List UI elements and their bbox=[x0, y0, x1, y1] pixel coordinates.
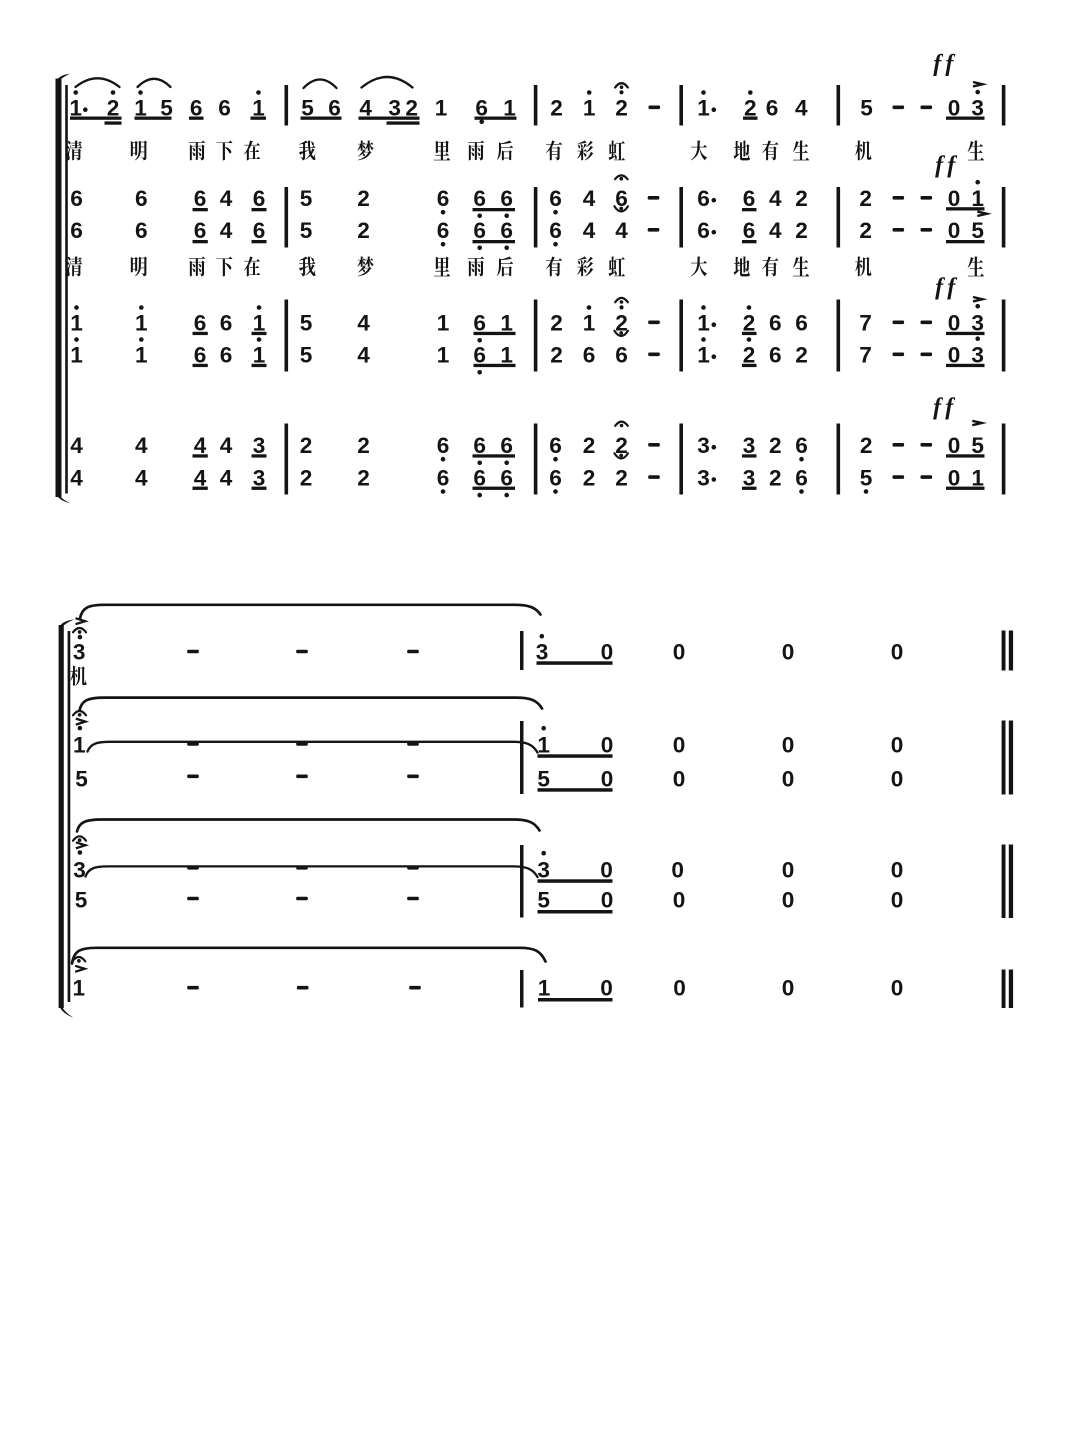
svg-text:6: 6 bbox=[583, 343, 596, 368]
svg-text:2: 2 bbox=[859, 186, 872, 211]
svg-text:3: 3 bbox=[697, 465, 710, 490]
svg-text:4: 4 bbox=[583, 186, 596, 211]
svg-text:6: 6 bbox=[697, 218, 710, 243]
svg-text:ff: ff bbox=[935, 152, 960, 178]
svg-text:7: 7 bbox=[859, 343, 872, 368]
svg-text:6: 6 bbox=[473, 465, 486, 490]
svg-text:0: 0 bbox=[891, 858, 904, 883]
svg-text:6: 6 bbox=[473, 311, 486, 336]
svg-text:6: 6 bbox=[473, 186, 486, 211]
svg-text:1: 1 bbox=[583, 96, 596, 121]
svg-text:0: 0 bbox=[782, 888, 795, 913]
svg-text:5: 5 bbox=[537, 888, 550, 913]
svg-text:0: 0 bbox=[948, 343, 961, 368]
svg-text:3: 3 bbox=[253, 465, 266, 490]
svg-text:2: 2 bbox=[550, 311, 563, 336]
svg-text:2: 2 bbox=[795, 218, 808, 243]
svg-text:6: 6 bbox=[697, 186, 710, 211]
svg-text:6: 6 bbox=[795, 433, 808, 458]
svg-text:1: 1 bbox=[435, 96, 448, 121]
svg-text:0: 0 bbox=[673, 766, 686, 791]
svg-text:6: 6 bbox=[194, 311, 207, 336]
svg-text:2: 2 bbox=[615, 96, 628, 121]
svg-text:6: 6 bbox=[500, 465, 513, 490]
svg-text:6: 6 bbox=[220, 343, 233, 368]
svg-text:0: 0 bbox=[948, 218, 961, 243]
svg-text:3: 3 bbox=[537, 858, 550, 883]
svg-text:2: 2 bbox=[860, 433, 873, 458]
svg-text:0: 0 bbox=[673, 733, 686, 758]
svg-text:1: 1 bbox=[73, 733, 86, 758]
svg-text:4: 4 bbox=[615, 218, 628, 243]
svg-text:1: 1 bbox=[253, 343, 266, 368]
svg-text:5: 5 bbox=[971, 218, 984, 243]
svg-text:4: 4 bbox=[583, 218, 596, 243]
svg-text:2: 2 bbox=[795, 343, 808, 368]
svg-text:6: 6 bbox=[769, 311, 782, 336]
svg-text:2: 2 bbox=[357, 433, 370, 458]
svg-text:ff: ff bbox=[933, 395, 958, 421]
svg-text:5: 5 bbox=[860, 465, 873, 490]
svg-text:4: 4 bbox=[135, 465, 148, 490]
svg-text:4: 4 bbox=[220, 186, 233, 211]
svg-text:2: 2 bbox=[795, 186, 808, 211]
svg-text:1: 1 bbox=[437, 311, 450, 336]
svg-text:6: 6 bbox=[437, 433, 450, 458]
svg-text:6: 6 bbox=[615, 343, 628, 368]
svg-text:6: 6 bbox=[70, 218, 83, 243]
svg-text:2: 2 bbox=[550, 343, 563, 368]
svg-text:5: 5 bbox=[75, 888, 88, 913]
svg-text:2: 2 bbox=[550, 96, 563, 121]
svg-text:0: 0 bbox=[782, 733, 795, 758]
svg-text:4: 4 bbox=[70, 465, 83, 490]
svg-text:2: 2 bbox=[743, 343, 756, 368]
svg-text:1: 1 bbox=[537, 733, 550, 758]
svg-text:4: 4 bbox=[769, 218, 782, 243]
svg-text:0: 0 bbox=[782, 858, 795, 883]
svg-text:0: 0 bbox=[891, 766, 904, 791]
svg-text:6: 6 bbox=[135, 186, 148, 211]
svg-text:5: 5 bbox=[300, 311, 313, 336]
svg-text:5: 5 bbox=[300, 186, 313, 211]
svg-text:6: 6 bbox=[549, 186, 562, 211]
svg-text:5: 5 bbox=[75, 766, 88, 791]
svg-text:0: 0 bbox=[673, 640, 686, 665]
svg-text:3: 3 bbox=[971, 311, 984, 336]
svg-text:3: 3 bbox=[73, 858, 86, 883]
svg-text:1: 1 bbox=[971, 465, 984, 490]
svg-text:0: 0 bbox=[782, 976, 795, 1001]
svg-text:0: 0 bbox=[601, 733, 614, 758]
svg-text:7: 7 bbox=[859, 311, 872, 336]
svg-text:2: 2 bbox=[357, 218, 370, 243]
svg-text:2: 2 bbox=[615, 465, 628, 490]
svg-text:2: 2 bbox=[769, 433, 782, 458]
svg-text:0: 0 bbox=[948, 433, 961, 458]
svg-text:6: 6 bbox=[218, 96, 231, 121]
svg-text:1: 1 bbox=[697, 311, 710, 336]
svg-text:4: 4 bbox=[769, 186, 782, 211]
svg-text:6: 6 bbox=[194, 218, 207, 243]
svg-text:6: 6 bbox=[220, 311, 233, 336]
svg-text:6: 6 bbox=[70, 186, 83, 211]
svg-text:3: 3 bbox=[536, 640, 549, 665]
svg-text:3: 3 bbox=[743, 465, 756, 490]
svg-text:0: 0 bbox=[601, 640, 614, 665]
svg-text:6: 6 bbox=[437, 218, 450, 243]
svg-text:3: 3 bbox=[697, 433, 710, 458]
svg-text:2: 2 bbox=[769, 465, 782, 490]
svg-text:6: 6 bbox=[743, 218, 756, 243]
svg-text:ff: ff bbox=[933, 51, 958, 77]
svg-text:2: 2 bbox=[583, 465, 596, 490]
svg-text:1: 1 bbox=[437, 343, 450, 368]
svg-text:4: 4 bbox=[135, 433, 148, 458]
svg-text:0: 0 bbox=[671, 858, 684, 883]
svg-text:0: 0 bbox=[782, 766, 795, 791]
svg-text:6: 6 bbox=[766, 96, 779, 121]
svg-text:4: 4 bbox=[795, 96, 808, 121]
svg-text:0: 0 bbox=[948, 465, 961, 490]
svg-text:2: 2 bbox=[357, 186, 370, 211]
svg-text:6: 6 bbox=[500, 218, 513, 243]
svg-text:1: 1 bbox=[73, 976, 86, 1001]
svg-text:0: 0 bbox=[673, 888, 686, 913]
svg-text:0: 0 bbox=[673, 976, 686, 1001]
svg-text:5: 5 bbox=[300, 343, 313, 368]
svg-text:2: 2 bbox=[743, 311, 756, 336]
svg-text:4: 4 bbox=[220, 218, 233, 243]
svg-text:0: 0 bbox=[782, 640, 795, 665]
svg-text:4: 4 bbox=[220, 465, 233, 490]
svg-text:5: 5 bbox=[860, 96, 873, 121]
svg-text:6: 6 bbox=[135, 218, 148, 243]
svg-text:1: 1 bbox=[135, 311, 148, 336]
svg-text:4: 4 bbox=[357, 311, 370, 336]
svg-text:6: 6 bbox=[795, 465, 808, 490]
svg-text:0: 0 bbox=[601, 766, 614, 791]
svg-text:3: 3 bbox=[743, 433, 756, 458]
svg-text:6: 6 bbox=[194, 186, 207, 211]
svg-text:2: 2 bbox=[583, 433, 596, 458]
svg-text:4: 4 bbox=[194, 433, 207, 458]
svg-text:5: 5 bbox=[537, 766, 550, 791]
svg-text:1: 1 bbox=[697, 343, 710, 368]
svg-text:0: 0 bbox=[891, 733, 904, 758]
svg-text:1: 1 bbox=[500, 311, 513, 336]
svg-text:0: 0 bbox=[891, 976, 904, 1001]
svg-text:6: 6 bbox=[549, 218, 562, 243]
svg-text:3: 3 bbox=[971, 343, 984, 368]
svg-text:6: 6 bbox=[795, 311, 808, 336]
svg-text:6: 6 bbox=[473, 433, 486, 458]
svg-text:1: 1 bbox=[697, 96, 710, 121]
svg-text:0: 0 bbox=[600, 976, 613, 1001]
svg-text:1: 1 bbox=[253, 311, 266, 336]
svg-text:4: 4 bbox=[70, 433, 83, 458]
svg-text:5: 5 bbox=[300, 218, 313, 243]
svg-text:ff: ff bbox=[935, 275, 960, 301]
svg-text:6: 6 bbox=[194, 343, 207, 368]
svg-text:6: 6 bbox=[769, 343, 782, 368]
svg-text:4: 4 bbox=[220, 433, 233, 458]
svg-text:6: 6 bbox=[253, 186, 266, 211]
svg-text:0: 0 bbox=[891, 640, 904, 665]
svg-text:6: 6 bbox=[500, 186, 513, 211]
svg-text:0: 0 bbox=[948, 311, 961, 336]
svg-text:6: 6 bbox=[253, 218, 266, 243]
svg-text:2: 2 bbox=[357, 465, 370, 490]
svg-text:1: 1 bbox=[500, 343, 513, 368]
svg-text:6: 6 bbox=[500, 433, 513, 458]
svg-text:1: 1 bbox=[135, 343, 148, 368]
svg-text:6: 6 bbox=[549, 465, 562, 490]
svg-text:0: 0 bbox=[601, 888, 614, 913]
svg-text:0: 0 bbox=[891, 888, 904, 913]
svg-text:1: 1 bbox=[538, 976, 551, 1001]
svg-text:6: 6 bbox=[473, 218, 486, 243]
svg-text:1: 1 bbox=[70, 343, 83, 368]
svg-text:6: 6 bbox=[743, 186, 756, 211]
svg-text:6: 6 bbox=[437, 465, 450, 490]
svg-text:3: 3 bbox=[73, 640, 86, 665]
svg-text:1: 1 bbox=[70, 311, 83, 336]
svg-text:0: 0 bbox=[600, 858, 613, 883]
svg-text:2: 2 bbox=[300, 465, 313, 490]
svg-text:1: 1 bbox=[583, 311, 596, 336]
svg-text:2: 2 bbox=[300, 433, 313, 458]
svg-text:6: 6 bbox=[437, 186, 450, 211]
svg-text:6: 6 bbox=[473, 343, 486, 368]
svg-text:5: 5 bbox=[971, 433, 984, 458]
svg-text:6: 6 bbox=[549, 433, 562, 458]
svg-text:2: 2 bbox=[859, 218, 872, 243]
svg-text:3: 3 bbox=[253, 433, 266, 458]
svg-text:4: 4 bbox=[357, 343, 370, 368]
svg-text:4: 4 bbox=[194, 465, 207, 490]
